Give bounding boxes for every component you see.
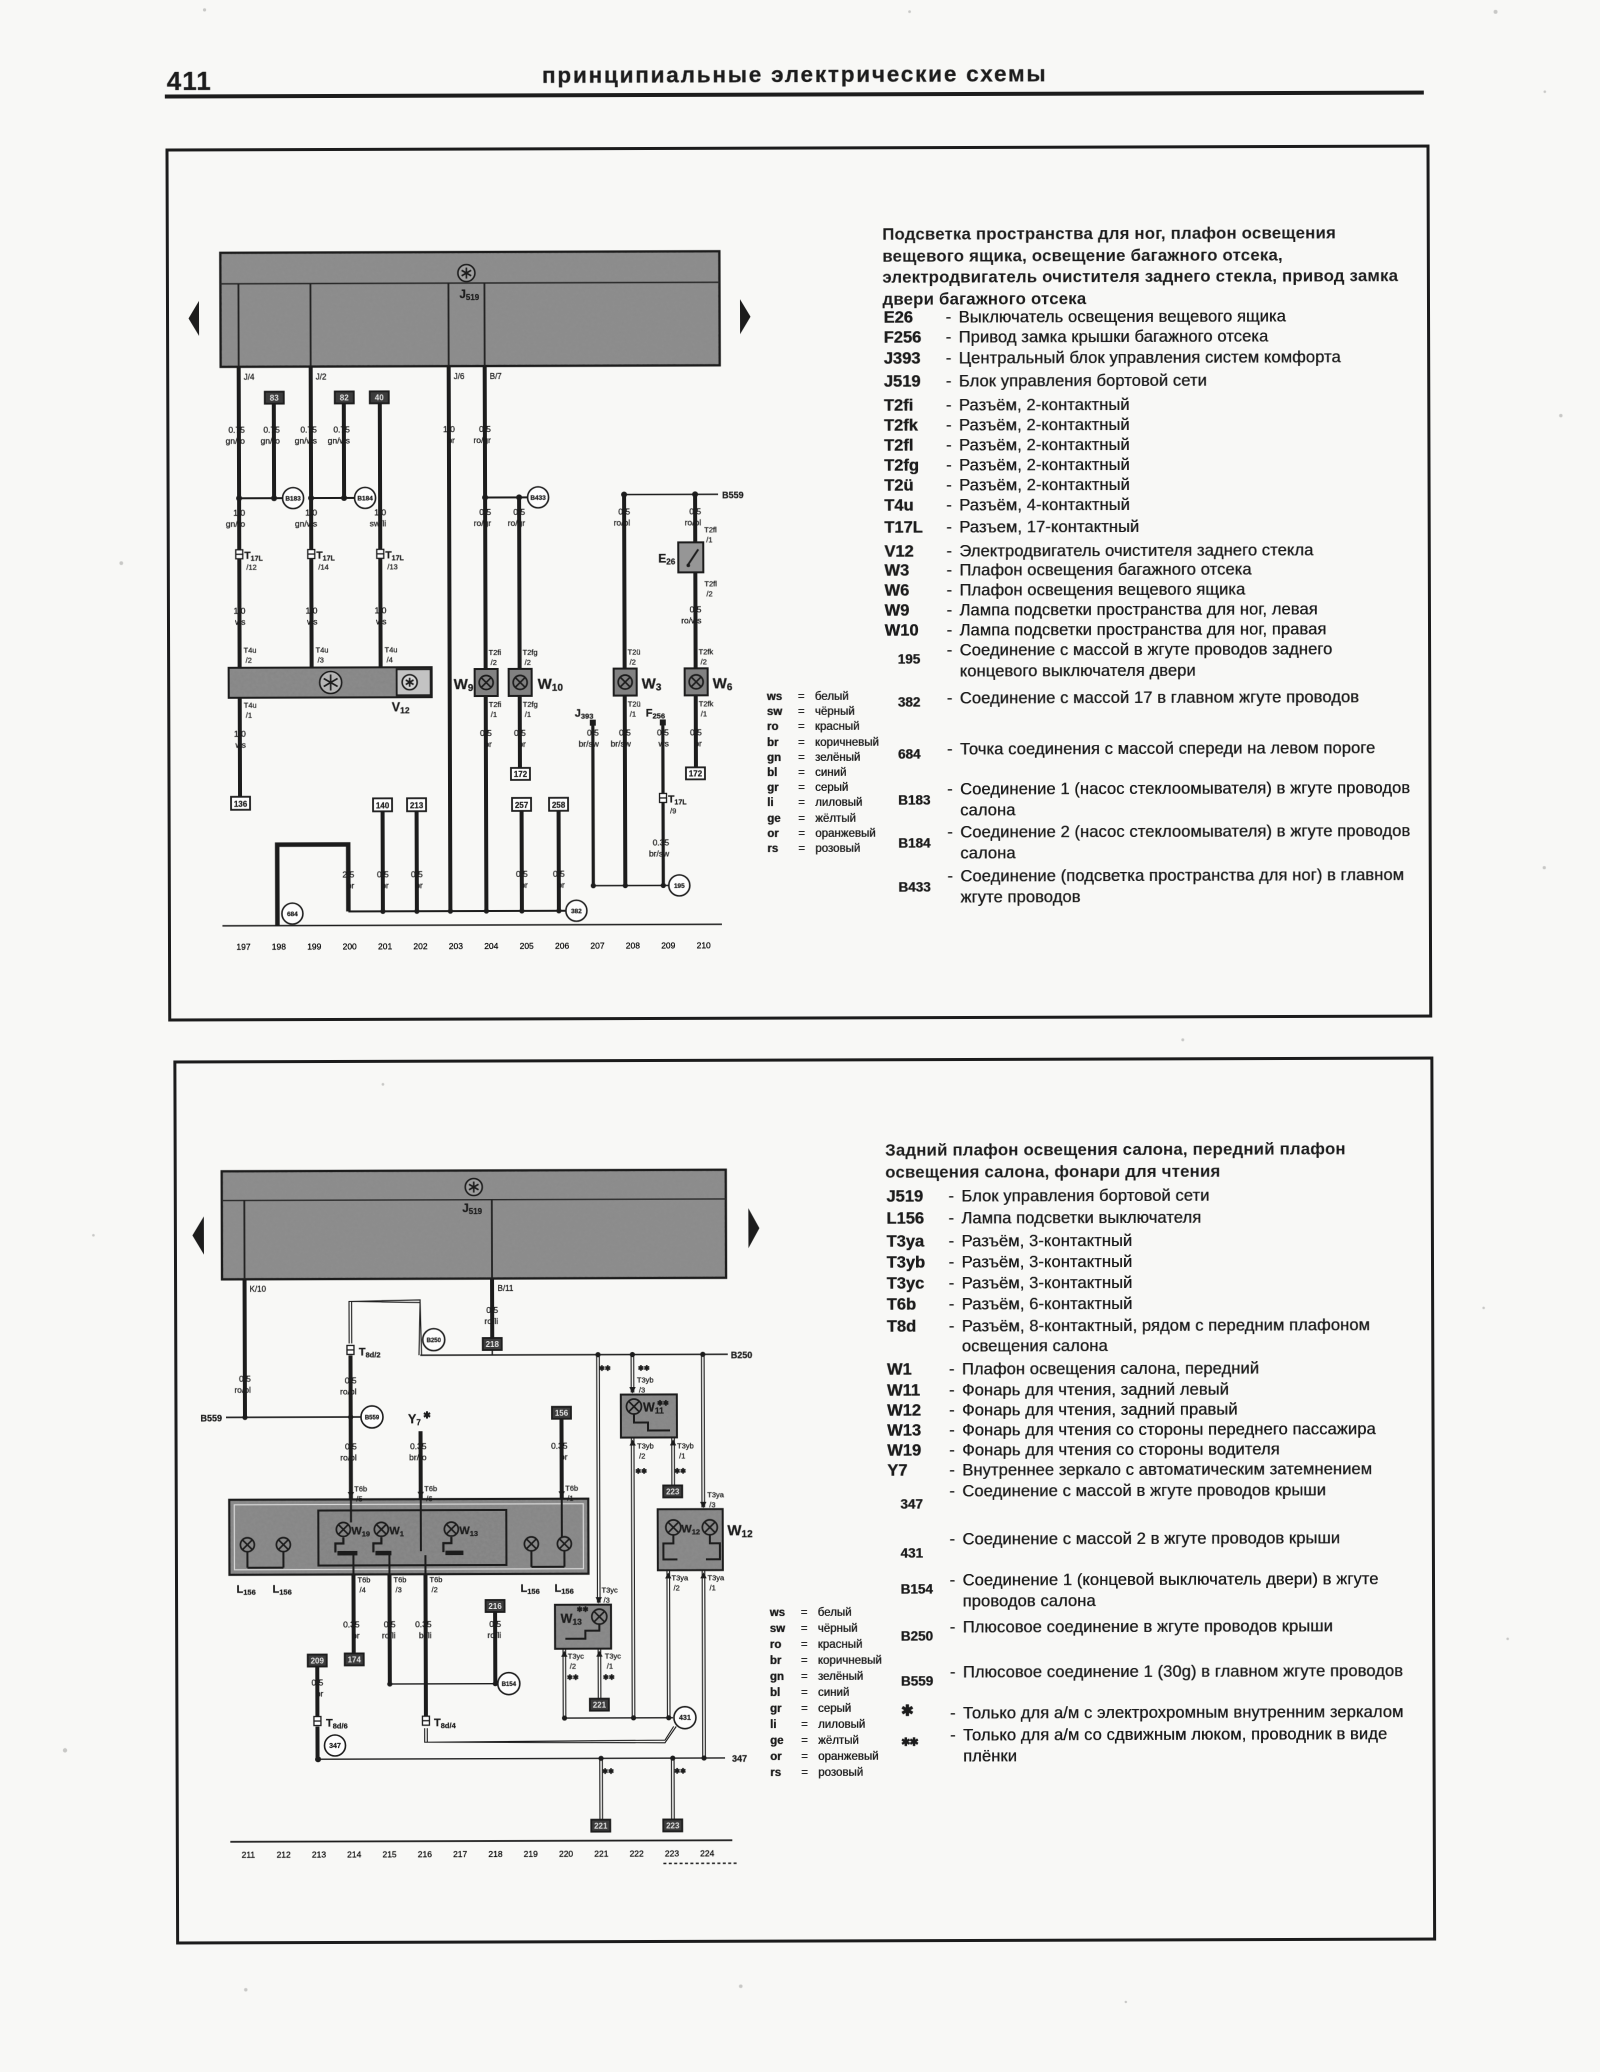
svg-text:T3yb: T3yb — [637, 1375, 654, 1384]
svg-text:T8d/6: T8d/6 — [326, 1717, 348, 1730]
svg-text:208: 208 — [626, 941, 640, 951]
svg-text:T2ü: T2ü — [628, 648, 641, 657]
svg-text:gn/ro: gn/ro — [261, 436, 281, 446]
svg-text:221: 221 — [594, 1821, 608, 1830]
svg-text:bl/li: bl/li — [419, 1630, 432, 1640]
svg-text:W9: W9 — [454, 676, 474, 694]
svg-text:T3ya: T3ya — [671, 1573, 689, 1582]
svg-text:0.5: 0.5 — [513, 507, 525, 517]
svg-text:T4u: T4u — [316, 646, 329, 655]
svg-text:207: 207 — [590, 941, 604, 951]
svg-text:209: 209 — [661, 940, 675, 950]
svg-text:ro/bl: ro/bl — [340, 1452, 357, 1462]
svg-text:0.5: 0.5 — [516, 869, 528, 879]
svg-text:0.75: 0.75 — [300, 425, 317, 435]
svg-text:/1: /1 — [491, 710, 497, 719]
svg-text:0.35: 0.35 — [551, 1441, 568, 1451]
svg-text:0.5: 0.5 — [553, 869, 565, 879]
svg-text:219: 219 — [524, 1849, 538, 1859]
svg-text:1.0: 1.0 — [234, 606, 246, 616]
svg-text:L156: L156 — [555, 1583, 574, 1596]
svg-text:0.5: 0.5 — [657, 727, 669, 737]
svg-text:0.75: 0.75 — [228, 425, 245, 435]
svg-text:347: 347 — [329, 1743, 341, 1750]
svg-text:ro/li: ro/li — [487, 1630, 501, 1640]
svg-text:B/11: B/11 — [498, 1284, 514, 1293]
svg-text:216: 216 — [418, 1849, 432, 1859]
svg-text:ro/li: ro/li — [484, 1316, 498, 1326]
svg-text:204: 204 — [484, 941, 498, 951]
svg-text:T3yc: T3yc — [568, 1652, 585, 1661]
svg-text:198: 198 — [272, 942, 286, 952]
svg-text:K/10: K/10 — [250, 1285, 267, 1294]
svg-text:1.0: 1.0 — [443, 424, 455, 434]
svg-text:✱✱: ✱✱ — [577, 1606, 589, 1614]
svg-text:1.0: 1.0 — [374, 507, 386, 517]
svg-text:0.35: 0.35 — [343, 1619, 360, 1629]
svg-text:T2ü: T2ü — [628, 700, 641, 709]
svg-text:/3: /3 — [604, 1596, 610, 1605]
svg-text:L156: L156 — [521, 1583, 540, 1596]
svg-text:T2fi: T2fi — [489, 648, 502, 657]
svg-text:82: 82 — [340, 393, 349, 402]
svg-text:/1: /1 — [710, 1583, 716, 1592]
svg-text:0.5: 0.5 — [619, 728, 631, 738]
svg-text:T17L: T17L — [385, 549, 404, 562]
svg-text:T4u: T4u — [244, 646, 257, 655]
svg-text:0.5: 0.5 — [384, 1619, 396, 1629]
svg-text:T8d/4: T8d/4 — [434, 1717, 457, 1730]
svg-text:B559: B559 — [722, 490, 744, 500]
svg-text:ro/gr: ro/gr — [474, 518, 492, 528]
svg-text:T4u: T4u — [244, 701, 257, 710]
svg-text:0.35: 0.35 — [415, 1619, 432, 1629]
svg-text:B433: B433 — [530, 495, 546, 502]
svg-text:/1: /1 — [246, 711, 252, 720]
svg-text:197: 197 — [236, 942, 250, 952]
svg-text:B/7: B/7 — [490, 372, 503, 381]
svg-text:✱✱: ✱✱ — [635, 1468, 647, 1476]
svg-text:0.5: 0.5 — [479, 507, 491, 517]
svg-text:209: 209 — [311, 1656, 325, 1665]
svg-text:✱✱: ✱✱ — [674, 1467, 686, 1475]
svg-text:/1: /1 — [706, 535, 712, 544]
svg-text:br: br — [520, 880, 528, 890]
svg-text:/3: /3 — [396, 1585, 402, 1594]
svg-text:W3: W3 — [642, 675, 662, 693]
svg-text:217: 217 — [453, 1849, 467, 1859]
svg-text:J393: J393 — [575, 708, 594, 721]
svg-text:199: 199 — [307, 942, 321, 952]
svg-text:/2: /2 — [246, 656, 252, 665]
svg-text:174: 174 — [348, 1655, 362, 1664]
svg-text:br/sw: br/sw — [579, 739, 600, 749]
svg-text:0.5: 0.5 — [690, 727, 702, 737]
svg-text:/2: /2 — [525, 658, 531, 667]
svg-text:B184: B184 — [357, 495, 373, 502]
svg-text:0.5: 0.5 — [489, 1619, 501, 1629]
svg-text:210: 210 — [697, 940, 711, 950]
svg-text:0.35: 0.35 — [653, 837, 670, 847]
svg-text:br: br — [484, 739, 492, 749]
svg-text:br: br — [694, 738, 702, 748]
svg-text:J/2: J/2 — [316, 373, 327, 382]
svg-text:0.5: 0.5 — [239, 1374, 251, 1384]
svg-text:ro/ws: ro/ws — [681, 615, 701, 625]
svg-text:40: 40 — [375, 393, 384, 402]
svg-text:0.35: 0.35 — [410, 1441, 427, 1451]
svg-text:258: 258 — [552, 801, 566, 810]
svg-text:/3: /3 — [639, 1386, 645, 1395]
svg-text:T3yb: T3yb — [677, 1441, 694, 1450]
svg-text:T2fk: T2fk — [699, 699, 714, 708]
svg-text:ro/gr: ro/gr — [508, 518, 526, 528]
svg-text:br: br — [447, 435, 455, 445]
svg-text:T3yb: T3yb — [637, 1441, 654, 1450]
svg-text:172: 172 — [689, 769, 703, 778]
svg-text:ro/bl: ro/bl — [614, 518, 631, 528]
svg-text:431: 431 — [679, 1715, 691, 1722]
svg-text:1.0: 1.0 — [375, 605, 387, 615]
svg-text:br: br — [415, 880, 423, 890]
svg-text:T3yc: T3yc — [605, 1652, 622, 1661]
svg-text:0.5: 0.5 — [480, 728, 492, 738]
svg-text:/2: /2 — [674, 1583, 680, 1592]
svg-text:L156: L156 — [237, 1584, 256, 1597]
svg-text:Y7 ✱: Y7 ✱ — [408, 1410, 431, 1427]
svg-text:T2fi: T2fi — [489, 700, 502, 709]
svg-text:0.5: 0.5 — [479, 424, 491, 434]
svg-text:220: 220 — [559, 1849, 573, 1859]
svg-text:✱✱: ✱✱ — [603, 1674, 615, 1682]
svg-text:172: 172 — [514, 770, 528, 779]
svg-text:/1: /1 — [567, 1494, 573, 1503]
svg-text:347: 347 — [732, 1754, 747, 1764]
svg-text:ws: ws — [234, 617, 245, 627]
svg-text:/2: /2 — [630, 658, 636, 667]
svg-text:gn/ws: gn/ws — [295, 436, 317, 446]
svg-text:0.5: 0.5 — [514, 728, 526, 738]
svg-text:T6b: T6b — [429, 1575, 442, 1584]
svg-text:211: 211 — [242, 1850, 256, 1860]
svg-text:T17L: T17L — [668, 793, 687, 806]
svg-text:W6: W6 — [713, 675, 733, 693]
svg-text:1.0: 1.0 — [233, 508, 245, 518]
svg-text:E26: E26 — [658, 551, 676, 566]
svg-text:gn/ro: gn/ro — [226, 519, 246, 529]
svg-text:/6: /6 — [426, 1494, 432, 1503]
svg-text:W12: W12 — [727, 1522, 753, 1540]
svg-text:принципиальные электрические с: принципиальные электрические схемы — [542, 61, 1047, 88]
svg-text:ro/gr: ro/gr — [473, 435, 491, 445]
svg-text:0.5: 0.5 — [689, 506, 701, 516]
svg-text:/2: /2 — [432, 1585, 438, 1594]
svg-text:ro/bl: ro/bl — [340, 1386, 357, 1396]
svg-text:202: 202 — [413, 941, 427, 951]
svg-text:/3: /3 — [318, 656, 324, 665]
svg-text:T8d/2: T8d/2 — [359, 1346, 381, 1359]
svg-text:F256: F256 — [646, 707, 665, 720]
svg-text:T6b: T6b — [565, 1484, 578, 1493]
svg-text:T2fl: T2fl — [704, 579, 717, 588]
svg-text:0.5: 0.5 — [345, 1441, 357, 1451]
svg-text:ws: ws — [306, 617, 317, 627]
svg-text:/2: /2 — [570, 1662, 576, 1671]
svg-text:T17L: T17L — [316, 549, 335, 562]
svg-text:br: br — [518, 739, 526, 749]
svg-text:/2: /2 — [706, 589, 712, 598]
svg-text:201: 201 — [378, 941, 392, 951]
svg-text:T6b: T6b — [354, 1484, 367, 1493]
svg-text:br: br — [352, 1630, 360, 1640]
svg-text:0.5: 0.5 — [311, 1678, 323, 1688]
svg-text:✱✱: ✱✱ — [638, 1364, 650, 1372]
svg-text:L156: L156 — [273, 1584, 292, 1597]
svg-text:0.5: 0.5 — [587, 728, 599, 738]
svg-text:0.5: 0.5 — [618, 507, 630, 517]
svg-text:/4: /4 — [360, 1585, 366, 1594]
svg-text:257: 257 — [515, 801, 529, 810]
svg-text:T2fl: T2fl — [704, 525, 717, 534]
svg-text:/14: /14 — [318, 563, 328, 572]
svg-text:/1: /1 — [701, 709, 707, 718]
svg-text:223: 223 — [666, 1821, 680, 1830]
svg-text:ro/li: ro/li — [382, 1630, 396, 1640]
svg-text:✱✱: ✱✱ — [657, 1399, 669, 1407]
svg-text:br/ro: br/ro — [409, 1452, 427, 1462]
svg-text:0.5: 0.5 — [377, 869, 389, 879]
svg-text:J/4: J/4 — [244, 373, 255, 382]
svg-text:/1: /1 — [679, 1451, 685, 1460]
svg-text:411: 411 — [167, 66, 212, 96]
svg-text:214: 214 — [347, 1849, 361, 1859]
svg-text:T6b: T6b — [393, 1575, 406, 1584]
svg-text:213: 213 — [312, 1850, 326, 1860]
svg-text:T3ya: T3ya — [707, 1573, 725, 1582]
svg-text:221: 221 — [593, 1700, 607, 1709]
svg-text:0.5: 0.5 — [690, 604, 702, 614]
svg-text:140: 140 — [376, 801, 390, 810]
svg-text:684: 684 — [287, 911, 298, 918]
svg-text:B559: B559 — [365, 1415, 380, 1421]
svg-text:br/sw: br/sw — [649, 848, 670, 858]
svg-text:206: 206 — [555, 941, 569, 951]
svg-text:T3yc: T3yc — [602, 1586, 619, 1595]
svg-text:/2: /2 — [701, 657, 707, 666]
svg-text:B250: B250 — [427, 1338, 442, 1344]
svg-text:B250: B250 — [731, 1350, 753, 1360]
svg-text:gn/ws: gn/ws — [295, 519, 317, 529]
svg-text:215: 215 — [382, 1849, 396, 1859]
svg-text:✱✱: ✱✱ — [602, 1768, 614, 1776]
svg-text:ws: ws — [234, 740, 245, 750]
svg-text:156: 156 — [555, 1409, 569, 1418]
svg-text:✱✱: ✱✱ — [674, 1767, 686, 1775]
svg-text:T2fg: T2fg — [523, 700, 538, 709]
svg-text:218: 218 — [486, 1340, 500, 1349]
svg-text:T6b: T6b — [357, 1575, 370, 1584]
svg-text:ro/bl: ro/bl — [234, 1385, 251, 1395]
svg-text:/1: /1 — [525, 710, 531, 719]
svg-text:382: 382 — [571, 908, 582, 915]
svg-text:T2fk: T2fk — [699, 647, 714, 656]
svg-text:T17L: T17L — [244, 550, 263, 563]
svg-text:/1: /1 — [607, 1662, 613, 1671]
svg-text:ws: ws — [657, 738, 668, 748]
svg-text:83: 83 — [270, 393, 279, 402]
svg-text:gn/ws: gn/ws — [328, 435, 350, 445]
svg-text:223: 223 — [665, 1848, 679, 1858]
svg-text:T3ya: T3ya — [707, 1490, 725, 1499]
svg-text:0.75: 0.75 — [263, 425, 280, 435]
svg-text:200: 200 — [343, 941, 357, 951]
svg-text:224: 224 — [700, 1848, 714, 1858]
svg-text:221: 221 — [594, 1849, 608, 1859]
svg-text:✱✱: ✱✱ — [567, 1674, 579, 1682]
svg-text:W10: W10 — [538, 676, 564, 694]
svg-text:✱✱: ✱✱ — [599, 1365, 611, 1373]
svg-text:205: 205 — [520, 941, 534, 951]
svg-text:/3: /3 — [709, 1500, 715, 1509]
svg-text:J/6: J/6 — [454, 372, 465, 381]
svg-text:0.5: 0.5 — [486, 1305, 498, 1315]
svg-text:/5: /5 — [356, 1494, 362, 1503]
svg-text:2.5: 2.5 — [342, 869, 354, 879]
svg-text:223: 223 — [666, 1487, 680, 1496]
svg-text:/2: /2 — [639, 1452, 645, 1461]
svg-text:br: br — [381, 880, 389, 890]
svg-text:222: 222 — [630, 1849, 644, 1859]
svg-text:B183: B183 — [285, 495, 301, 502]
svg-text:0.5: 0.5 — [411, 869, 423, 879]
svg-text:br: br — [347, 880, 355, 890]
svg-text:ws: ws — [375, 616, 386, 626]
svg-text:213: 213 — [410, 801, 424, 810]
svg-text:1.0: 1.0 — [306, 606, 318, 616]
svg-text:/9: /9 — [670, 806, 676, 815]
svg-text:sw/li: sw/li — [370, 518, 387, 528]
svg-text:V12: V12 — [392, 700, 410, 715]
svg-text:ro/bl: ro/bl — [685, 517, 702, 527]
svg-text:212: 212 — [277, 1850, 291, 1860]
svg-text:216: 216 — [488, 1602, 502, 1611]
svg-text:gn/ro: gn/ro — [226, 436, 246, 446]
svg-text:B559: B559 — [200, 1413, 222, 1423]
svg-text:/4: /4 — [387, 655, 393, 664]
svg-text:br: br — [557, 880, 565, 890]
svg-text:T4u: T4u — [385, 645, 398, 654]
svg-text:B154: B154 — [502, 1682, 517, 1688]
svg-text:br/sw: br/sw — [611, 739, 632, 749]
svg-text:/2: /2 — [491, 658, 497, 667]
svg-text:136: 136 — [234, 800, 248, 809]
svg-text:1.0: 1.0 — [305, 508, 317, 518]
svg-text:/12: /12 — [246, 563, 256, 572]
svg-text:218: 218 — [488, 1849, 502, 1859]
svg-text:195: 195 — [674, 883, 685, 890]
svg-text:203: 203 — [449, 941, 463, 951]
svg-text:T6b: T6b — [424, 1484, 437, 1493]
svg-text:/13: /13 — [387, 562, 397, 571]
svg-text:br: br — [316, 1689, 324, 1699]
svg-text:T2fg: T2fg — [523, 648, 538, 657]
svg-text:0.5: 0.5 — [345, 1375, 357, 1385]
svg-text:1.0: 1.0 — [234, 729, 246, 739]
svg-text:0.75: 0.75 — [333, 424, 350, 434]
svg-text:/1: /1 — [630, 710, 636, 719]
svg-text:or: or — [560, 1452, 568, 1462]
